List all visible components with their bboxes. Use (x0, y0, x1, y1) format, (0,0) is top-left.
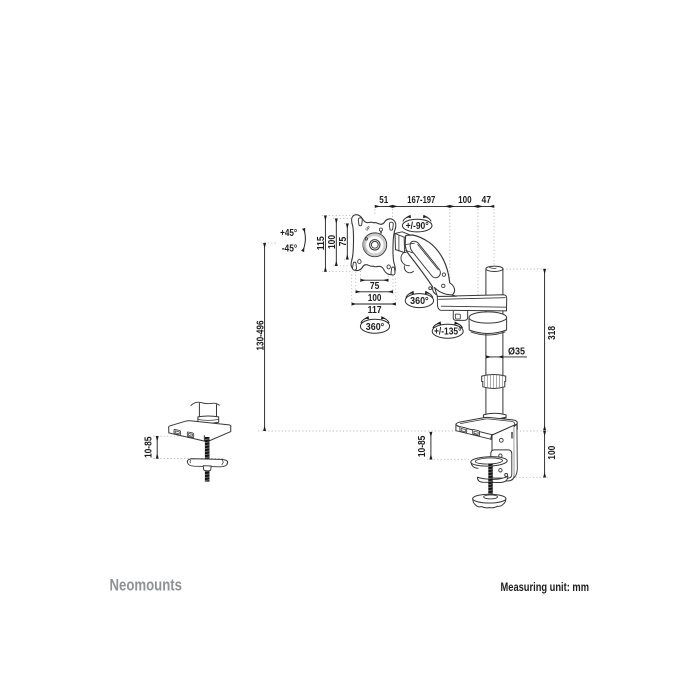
svg-text:47: 47 (482, 195, 492, 206)
svg-text:Ø35: Ø35 (508, 347, 525, 358)
svg-text:318: 318 (547, 326, 558, 340)
svg-text:51: 51 (379, 195, 388, 206)
svg-text:100: 100 (368, 293, 382, 304)
svg-text:100: 100 (327, 235, 338, 249)
svg-text:-45°: -45° (282, 243, 298, 254)
svg-text:130-496: 130-496 (255, 320, 266, 350)
svg-text:115: 115 (316, 236, 327, 250)
svg-text:+/-90°: +/-90° (406, 221, 429, 232)
svg-text:100: 100 (547, 445, 558, 459)
svg-text:75: 75 (370, 281, 380, 292)
svg-text:10-85: 10-85 (144, 436, 155, 458)
svg-text:+/-135°: +/-135° (434, 327, 462, 338)
svg-text:100: 100 (458, 195, 472, 206)
svg-text:360°: 360° (410, 296, 429, 307)
svg-text:75: 75 (338, 236, 349, 246)
svg-text:117: 117 (368, 305, 382, 316)
svg-text:10-85: 10-85 (417, 435, 428, 457)
svg-text:167-197: 167-197 (407, 195, 435, 206)
svg-text:Measuring unit: mm: Measuring unit: mm (501, 580, 590, 594)
svg-text:Neomounts: Neomounts (110, 576, 183, 595)
svg-text:360°: 360° (366, 322, 385, 333)
svg-text:+45°: +45° (280, 228, 297, 239)
